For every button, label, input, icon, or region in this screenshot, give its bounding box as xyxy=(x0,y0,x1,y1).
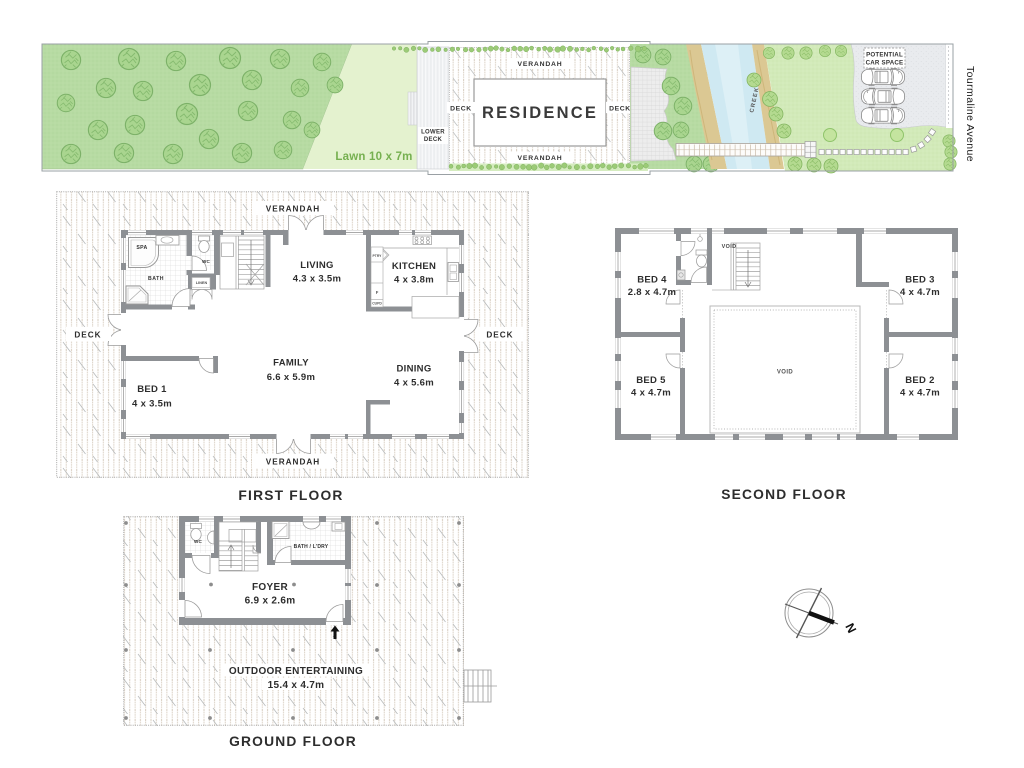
svg-text:VERANDAH: VERANDAH xyxy=(518,61,563,68)
svg-text:CAR SPACE: CAR SPACE xyxy=(866,60,904,67)
svg-text:CUPD: CUPD xyxy=(372,302,382,306)
svg-text:LINEN: LINEN xyxy=(196,281,208,285)
svg-text:FIRST FLOOR: FIRST FLOOR xyxy=(238,488,343,503)
svg-text:GROUND FLOOR: GROUND FLOOR xyxy=(229,734,357,749)
svg-text:WC: WC xyxy=(202,259,211,264)
svg-text:4 x 4.7m: 4 x 4.7m xyxy=(900,388,940,399)
svg-text:F: F xyxy=(376,290,379,295)
svg-text:OUTDOOR ENTERTAINING: OUTDOOR ENTERTAINING xyxy=(229,666,363,677)
svg-text:BED 5: BED 5 xyxy=(636,375,666,386)
svg-text:PTRY: PTRY xyxy=(373,254,383,258)
svg-text:KITCHEN: KITCHEN xyxy=(392,261,436,272)
svg-text:WC: WC xyxy=(194,539,203,544)
svg-text:VERANDAH: VERANDAH xyxy=(266,205,320,214)
svg-text:4 x 4.7m: 4 x 4.7m xyxy=(631,388,671,399)
svg-text:RESIDENCE: RESIDENCE xyxy=(482,104,598,122)
svg-text:4 x 3.8m: 4 x 3.8m xyxy=(394,275,434,286)
svg-text:Tourmaline Avenue: Tourmaline Avenue xyxy=(964,66,976,162)
svg-text:VERANDAH: VERANDAH xyxy=(266,458,320,467)
svg-text:SECOND FLOOR: SECOND FLOOR xyxy=(721,487,847,502)
svg-text:DECK: DECK xyxy=(486,331,513,340)
svg-text:4.3 x 3.5m: 4.3 x 3.5m xyxy=(293,274,341,285)
svg-text:BED 4: BED 4 xyxy=(637,275,667,286)
svg-text:DECK: DECK xyxy=(450,106,472,113)
svg-text:15.4 x 4.7m: 15.4 x 4.7m xyxy=(268,680,325,691)
svg-text:FOYER: FOYER xyxy=(252,582,288,593)
svg-text:6.6 x 5.9m: 6.6 x 5.9m xyxy=(267,372,315,383)
svg-text:DINING: DINING xyxy=(396,364,431,375)
svg-text:Lawn 10 x 7m: Lawn 10 x 7m xyxy=(335,151,412,163)
svg-text:4 x 5.6m: 4 x 5.6m xyxy=(394,378,434,389)
svg-text:FAMILY: FAMILY xyxy=(273,358,309,369)
svg-text:BED 3: BED 3 xyxy=(905,275,934,286)
svg-text:VERANDAH: VERANDAH xyxy=(518,155,563,162)
svg-text:BATH / L'DRY: BATH / L'DRY xyxy=(294,544,329,550)
svg-text:VOID: VOID xyxy=(777,370,794,376)
svg-text:N: N xyxy=(842,621,859,635)
svg-text:SPA: SPA xyxy=(136,245,147,251)
svg-text:DECK: DECK xyxy=(74,331,101,340)
svg-text:DECK: DECK xyxy=(609,106,631,113)
svg-text:4 x 3.5m: 4 x 3.5m xyxy=(132,399,172,410)
svg-text:BATH: BATH xyxy=(148,276,164,282)
svg-text:BED 1: BED 1 xyxy=(137,384,167,395)
svg-text:POTENTIAL: POTENTIAL xyxy=(866,52,903,59)
svg-text:VOID: VOID xyxy=(722,244,737,250)
svg-text:BED 2: BED 2 xyxy=(905,375,934,386)
svg-text:4 x 4.7m: 4 x 4.7m xyxy=(900,287,940,298)
svg-text:LOWER: LOWER xyxy=(421,130,445,136)
svg-text:LIVING: LIVING xyxy=(300,260,333,271)
svg-text:DECK: DECK xyxy=(424,137,443,143)
svg-text:2.8 x 4.7m: 2.8 x 4.7m xyxy=(628,287,676,298)
svg-text:6.9 x 2.6m: 6.9 x 2.6m xyxy=(245,596,296,607)
